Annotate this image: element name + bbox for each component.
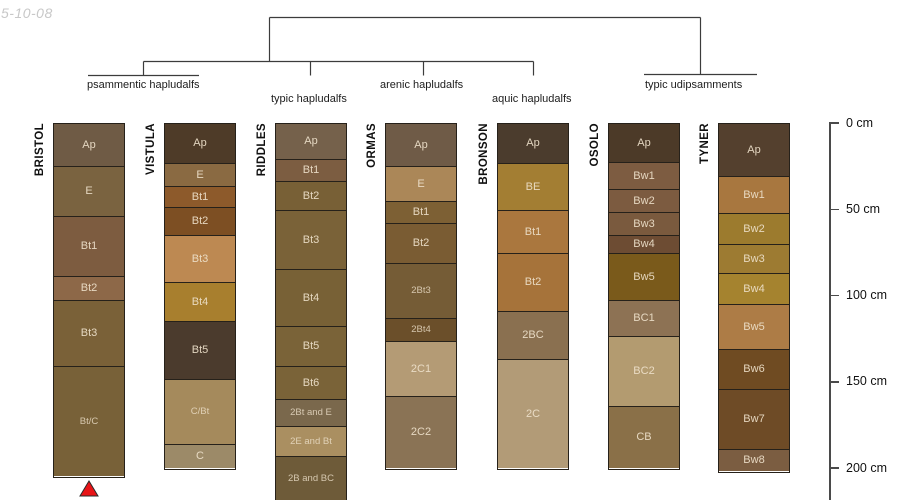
horizon-vistula-bt2: Bt2 <box>165 207 235 235</box>
horizon-riddles-bt3: Bt3 <box>276 210 346 269</box>
depth-scale-axis <box>829 123 831 500</box>
horizon-riddles-bt2: Bt2 <box>276 181 346 210</box>
horizon-label: Bw5 <box>633 272 654 283</box>
horizon-vistula-bt4: Bt4 <box>165 282 235 321</box>
horizon-label: Bt1 <box>192 192 209 203</box>
horizon-bristol-e: E <box>54 166 124 216</box>
soil-column-tyner: ApBw1Bw2Bw3Bw4Bw5Bw6Bw7Bw8 <box>718 123 790 473</box>
horizon-label: Bw8 <box>743 455 764 466</box>
horizon-vistula-bt1: Bt1 <box>165 186 235 207</box>
horizon-bristol-ap: Ap <box>54 124 124 166</box>
column-name-bronson: BRONSON <box>478 123 490 185</box>
horizon-vistula-e: E <box>165 163 235 186</box>
column-name-tyner: TYNER <box>699 123 711 164</box>
horizon-label: Bt1 <box>303 165 320 176</box>
tree-label-typic-udipsamments: typic udipsamments <box>645 79 742 91</box>
horizon-label: Bt/C <box>80 417 98 427</box>
horizon-riddles-2b-and-bc: 2B and BC <box>276 456 346 500</box>
horizon-label: C/Bt <box>191 407 209 417</box>
horizon-bronson-ap: Ap <box>498 124 568 163</box>
horizon-label: 2C1 <box>411 364 431 375</box>
horizon-osolo-bw3: Bw3 <box>609 212 679 235</box>
column-name-vistula: VISTULA <box>145 123 157 175</box>
horizon-label: 2B and BC <box>288 474 334 484</box>
horizon-label: BC2 <box>633 366 654 377</box>
horizon-label: Ap <box>414 140 427 151</box>
horizon-label: Bt5 <box>303 341 320 352</box>
horizon-label: Bw7 <box>743 414 764 425</box>
horizon-bristol-bt1: Bt1 <box>54 216 124 276</box>
horizon-osolo-bw1: Bw1 <box>609 162 679 189</box>
depth-label-150cm: 150 cm <box>846 374 887 388</box>
horizon-label: Bt3 <box>303 235 320 246</box>
horizon-label: E <box>417 179 424 190</box>
horizon-label: Bt5 <box>192 345 209 356</box>
horizon-label: C <box>196 451 204 462</box>
horizon-label: Ap <box>747 145 760 156</box>
tree-label-typic-hapludalfs: typic hapludalfs <box>271 93 347 105</box>
horizon-label: Bt3 <box>81 328 98 339</box>
horizon-osolo-bc1: BC1 <box>609 300 679 336</box>
horizon-bristol-bt2: Bt2 <box>54 276 124 300</box>
horizon-label: Bw2 <box>633 196 654 207</box>
tree-label-arenic-hapludalfs: arenic hapludalfs <box>380 79 463 91</box>
horizon-label: Ap <box>82 140 95 151</box>
column-name-riddles: RIDDLES <box>256 123 268 176</box>
horizon-bristol-bt3: Bt3 <box>54 300 124 366</box>
horizon-label: Bw6 <box>743 364 764 375</box>
horizon-label: Bt1 <box>81 241 98 252</box>
horizon-label: Bw2 <box>743 224 764 235</box>
horizon-label: 2Bt4 <box>411 325 431 335</box>
horizon-ormas-e: E <box>386 166 456 201</box>
horizon-label: Bt2 <box>413 238 430 249</box>
horizon-tyner-bw6: Bw6 <box>719 349 789 389</box>
horizon-riddles-bt5: Bt5 <box>276 326 346 366</box>
soil-column-vistula: ApEBt1Bt2Bt3Bt4Bt5C/BtC <box>164 123 236 470</box>
red-triangle-marker <box>78 479 100 498</box>
horizon-label: 2Bt3 <box>411 286 431 296</box>
horizon-riddles-bt6: Bt6 <box>276 366 346 399</box>
horizon-bronson-2bc: 2BC <box>498 311 568 359</box>
horizon-vistula-ap: Ap <box>165 124 235 163</box>
depth-tick-200cm <box>829 467 839 469</box>
horizon-bristol-bt-c: Bt/C <box>54 366 124 476</box>
horizon-label: CB <box>636 432 651 443</box>
horizon-label: Bt2 <box>81 283 98 294</box>
horizon-ormas-bt1: Bt1 <box>386 201 456 223</box>
horizon-osolo-bw4: Bw4 <box>609 235 679 253</box>
classification-tree-lines <box>0 0 900 120</box>
horizon-bronson-bt1: Bt1 <box>498 210 568 253</box>
column-name-ormas: ORMAS <box>366 123 378 168</box>
horizon-label: Bw1 <box>743 190 764 201</box>
horizon-label: 2Bt and E <box>290 408 332 418</box>
red-triangle-shape <box>80 481 98 496</box>
horizon-osolo-bw2: Bw2 <box>609 189 679 212</box>
soil-column-ormas: ApEBt1Bt22Bt32Bt42C12C2 <box>385 123 457 470</box>
horizon-tyner-bw3: Bw3 <box>719 244 789 273</box>
tree-label-psammentic-hapludalfs: psammentic hapludalfs <box>87 79 200 91</box>
horizon-label: BC1 <box>633 313 654 324</box>
horizon-ormas-2c1: 2C1 <box>386 341 456 396</box>
horizon-osolo-cb: CB <box>609 406 679 468</box>
horizon-riddles-bt1: Bt1 <box>276 159 346 181</box>
horizon-label: 2C2 <box>411 427 431 438</box>
horizon-tyner-ap: Ap <box>719 124 789 176</box>
column-name-osolo: OSOLO <box>589 123 601 167</box>
horizon-ormas-bt2: Bt2 <box>386 223 456 263</box>
horizon-vistula-c-bt: C/Bt <box>165 379 235 444</box>
horizon-ormas-2c2: 2C2 <box>386 396 456 468</box>
horizon-osolo-bw5: Bw5 <box>609 253 679 300</box>
depth-tick-50cm <box>829 209 839 211</box>
horizon-riddles-bt4: Bt4 <box>276 269 346 326</box>
horizon-label: E <box>85 186 92 197</box>
soil-column-bristol: ApEBt1Bt2Bt3Bt/C <box>53 123 125 478</box>
horizon-tyner-bw7: Bw7 <box>719 389 789 449</box>
horizon-label: Bt6 <box>303 378 320 389</box>
column-name-bristol: BRISTOL <box>34 123 46 176</box>
horizon-label: Bw4 <box>743 284 764 295</box>
horizon-label: Ap <box>193 138 206 149</box>
horizon-vistula-bt3: Bt3 <box>165 235 235 282</box>
soil-column-riddles: ApBt1Bt2Bt3Bt4Bt5Bt62Bt and E2E and Bt2B… <box>275 123 347 500</box>
horizon-label: Bt2 <box>525 277 542 288</box>
depth-tick-100cm <box>829 295 839 297</box>
horizon-tyner-bw4: Bw4 <box>719 273 789 304</box>
horizon-label: Bt2 <box>303 191 320 202</box>
depth-label-100cm: 100 cm <box>846 288 887 302</box>
horizon-riddles-2bt-and-e: 2Bt and E <box>276 399 346 426</box>
horizon-label: Bw3 <box>633 219 654 230</box>
horizon-vistula-c: C <box>165 444 235 468</box>
horizon-label: Ap <box>526 138 539 149</box>
soil-profile-diagram: 5-10-08 psammentic hapludalfs typic hapl… <box>0 0 900 500</box>
horizon-label: Bt4 <box>303 293 320 304</box>
horizon-osolo-ap: Ap <box>609 124 679 162</box>
horizon-ormas-2bt3: 2Bt3 <box>386 263 456 318</box>
horizon-label: Bt4 <box>192 297 209 308</box>
horizon-label: Bw5 <box>743 322 764 333</box>
depth-label-200cm: 200 cm <box>846 461 887 475</box>
soil-column-bronson: ApBEBt1Bt22BC2C <box>497 123 569 470</box>
horizon-bronson-bt2: Bt2 <box>498 253 568 311</box>
horizon-label: Bt1 <box>413 207 430 218</box>
horizon-ormas-ap: Ap <box>386 124 456 166</box>
horizon-label: Bw4 <box>633 239 654 250</box>
soil-column-osolo: ApBw1Bw2Bw3Bw4Bw5BC1BC2CB <box>608 123 680 470</box>
horizon-ormas-2bt4: 2Bt4 <box>386 318 456 341</box>
tree-label-aquic-hapludalfs: aquic hapludalfs <box>492 93 572 105</box>
horizon-label: 2C <box>526 409 540 420</box>
horizon-label: BE <box>526 182 541 193</box>
horizon-tyner-bw2: Bw2 <box>719 213 789 244</box>
horizon-label: Ap <box>637 138 650 149</box>
horizon-label: 2BC <box>522 330 543 341</box>
horizon-vistula-bt5: Bt5 <box>165 321 235 379</box>
depth-tick-0cm <box>829 122 839 124</box>
horizon-riddles-ap: Ap <box>276 124 346 159</box>
horizon-tyner-bw5: Bw5 <box>719 304 789 349</box>
horizon-label: Bt1 <box>525 227 542 238</box>
horizon-label: Bt3 <box>192 254 209 265</box>
depth-label-0cm: 0 cm <box>846 116 873 130</box>
horizon-bronson-be: BE <box>498 163 568 210</box>
horizon-osolo-bc2: BC2 <box>609 336 679 406</box>
depth-label-50cm: 50 cm <box>846 202 880 216</box>
horizon-tyner-bw8: Bw8 <box>719 449 789 471</box>
horizon-label: 2E and Bt <box>290 437 332 447</box>
horizon-label: Ap <box>304 136 317 147</box>
horizon-label: Bw1 <box>633 171 654 182</box>
horizon-riddles-2e-and-bt: 2E and Bt <box>276 426 346 456</box>
horizon-label: Bw3 <box>743 254 764 265</box>
horizon-label: E <box>196 170 203 181</box>
horizon-bronson-2c: 2C <box>498 359 568 468</box>
horizon-label: Bt2 <box>192 216 209 227</box>
horizon-tyner-bw1: Bw1 <box>719 176 789 213</box>
depth-tick-150cm <box>829 381 839 383</box>
